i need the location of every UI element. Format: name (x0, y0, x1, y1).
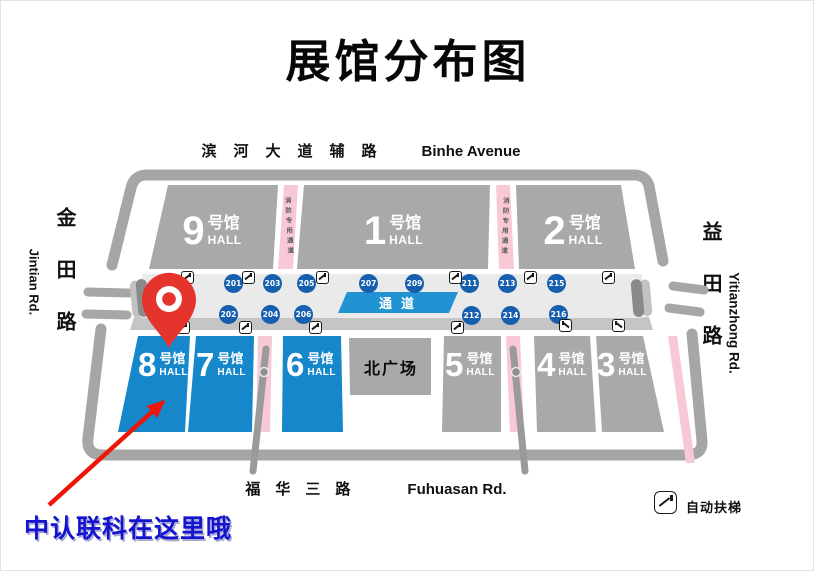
hall-8-label: 8 号馆HALL (134, 340, 192, 390)
hall-5-number: 5 (445, 350, 463, 380)
gate-212: 212 (462, 306, 481, 325)
escalator-icon (239, 321, 252, 334)
hall-2-number: 2 (543, 213, 565, 249)
gate-214: 214 (501, 306, 520, 325)
hall-9-number: 9 (182, 213, 204, 249)
gate-213: 213 (498, 274, 517, 293)
escalator-icon (524, 271, 537, 284)
hall-5-sub: HALL (466, 367, 495, 378)
gate-211: 211 (460, 274, 479, 293)
hall-4-label: 4 号馆HALL (533, 340, 591, 390)
escalator-icon (177, 321, 190, 334)
gate-201: 201 (224, 274, 243, 293)
hall-7-sub: HALL (217, 367, 246, 378)
hall-1-sub: HALL (389, 234, 423, 247)
hall-7-number: 7 (196, 350, 214, 380)
hall-2-sub: HALL (569, 234, 603, 247)
gate-205: 205 (297, 274, 316, 293)
hall-8-name: 号馆 (159, 352, 188, 367)
exhibition-hall-map: 展馆分布图 滨河大道辅路 Binhe Avenue 金田路 Jintian Rd… (0, 0, 814, 571)
gate-202: 202 (219, 305, 238, 324)
annotation-text: 中认联科在这里哦 (24, 509, 232, 545)
hall-2-label: 2 号馆HALL (517, 193, 629, 269)
corridor-bottom-edge (130, 317, 653, 330)
escalator-icon (242, 271, 255, 284)
gate-209: 209 (405, 274, 424, 293)
hall-7-name: 号馆 (217, 352, 246, 367)
escalator-icon (449, 271, 462, 284)
escalator-icon (559, 319, 572, 332)
hall-3-name: 号馆 (618, 352, 647, 367)
hall-6-label: 6 号馆HALL (282, 340, 340, 390)
escalator-icon (309, 321, 322, 334)
hall-5-label: 5 号馆HALL (441, 340, 499, 390)
east-wall-stub-lower (669, 308, 700, 312)
hall-1-label: 1 号馆HALL (301, 193, 486, 269)
hall-9-sub: HALL (208, 234, 242, 247)
hall-6-number: 6 (286, 350, 304, 380)
gate-207: 207 (359, 274, 378, 293)
fire-lane-label-east: 消防专用通道 (499, 197, 508, 257)
service-road-west-bollard (260, 368, 269, 377)
corridor-east-cap (630, 278, 652, 318)
hall-1-number: 1 (364, 213, 386, 249)
service-road-east-bollard (512, 368, 521, 377)
hall-4-number: 4 (537, 350, 555, 380)
gate-215: 215 (547, 274, 566, 293)
corridor-west-cap (129, 279, 149, 318)
west-wall-stub-lower (86, 314, 127, 315)
hall-8-sub: HALL (159, 367, 188, 378)
legend-escalator-label: 自动扶梯 (686, 497, 742, 516)
hall-4-sub: HALL (558, 367, 587, 378)
hall-3-number: 3 (597, 350, 615, 380)
east-wall-stub-upper (673, 286, 704, 290)
hall-7-label: 7 号馆HALL (191, 340, 251, 390)
legend-escalator-icon (654, 491, 677, 514)
escalator-icon (612, 319, 625, 332)
hall-9-label: 9 号馆HALL (151, 193, 273, 269)
hall-3-label: 3 号馆HALL (593, 340, 651, 390)
corridor-label: 通道 (351, 292, 451, 312)
hall-1-name: 号馆 (389, 215, 423, 233)
west-wall-stub-upper (88, 292, 129, 293)
hall-5-name: 号馆 (466, 352, 495, 367)
hall-2-name: 号馆 (569, 215, 603, 233)
gate-204: 204 (261, 305, 280, 324)
hall-3-sub: HALL (618, 367, 647, 378)
escalator-icon (316, 271, 329, 284)
hall-6-name: 号馆 (307, 352, 336, 367)
hall-6-sub: HALL (307, 367, 336, 378)
escalator-icon (602, 271, 615, 284)
escalator-icon (451, 321, 464, 334)
escalator-icon (181, 271, 194, 284)
hall-8-number: 8 (138, 350, 156, 380)
north-plaza-label: 北广场 (349, 339, 433, 394)
hall-4-name: 号馆 (558, 352, 587, 367)
gate-203: 203 (263, 274, 282, 293)
hall-9-name: 号馆 (208, 215, 242, 233)
